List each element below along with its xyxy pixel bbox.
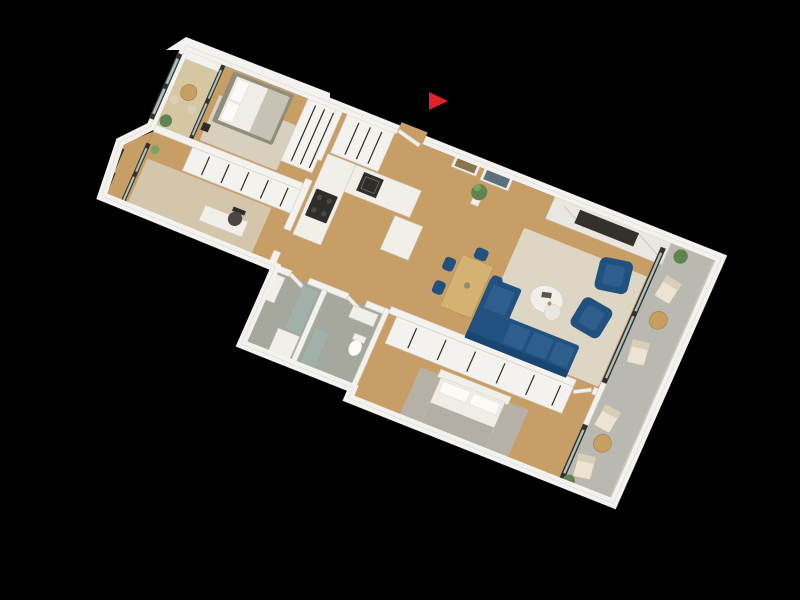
- entrance-marker-icon: [429, 92, 448, 110]
- floorplan-render-canvas: [0, 0, 800, 600]
- apartment-plan: [57, 30, 724, 505]
- floorplan-svg: [0, 0, 800, 600]
